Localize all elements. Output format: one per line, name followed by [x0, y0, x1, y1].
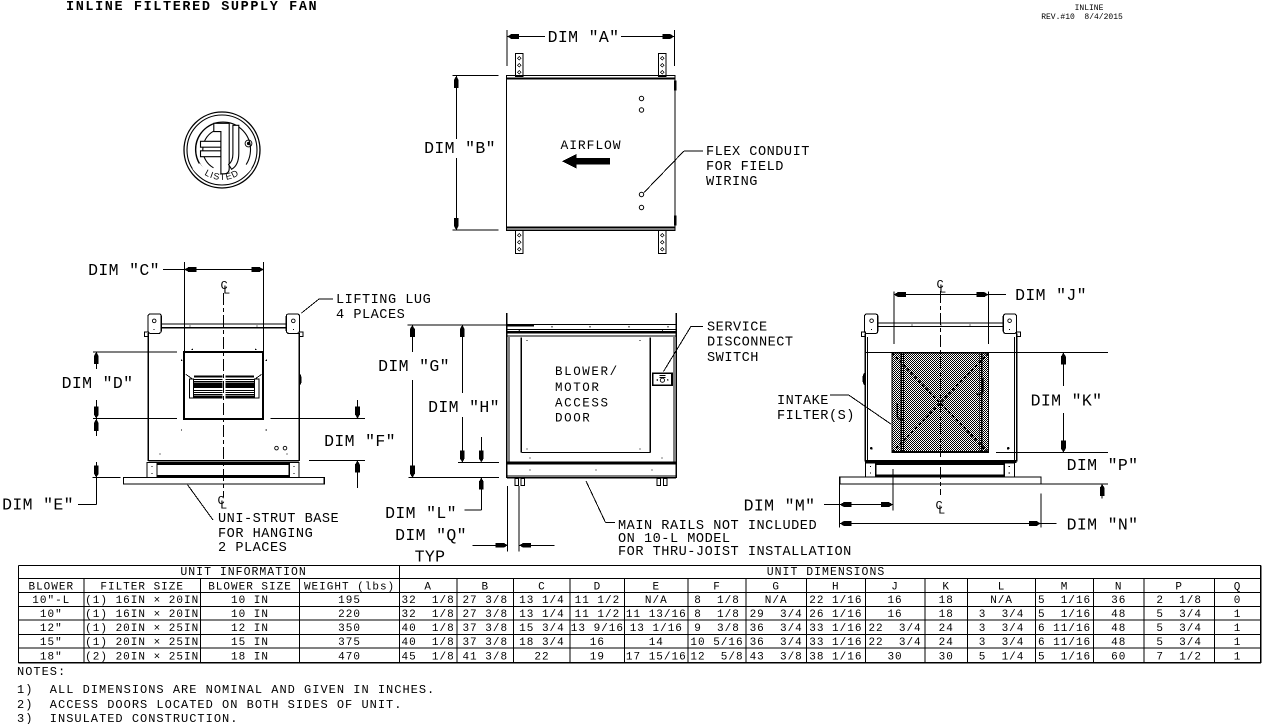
- svg-text:16: 16: [887, 595, 902, 607]
- svg-text:Q: Q: [1234, 582, 1242, 594]
- svg-text:(1) 20IN × 25IN: (1) 20IN × 25IN: [85, 623, 199, 635]
- svg-text:K: K: [942, 582, 950, 594]
- svg-text:DIM "B": DIM "B": [424, 139, 496, 158]
- svg-text:DIM "Q": DIM "Q": [395, 526, 467, 545]
- svg-text:48: 48: [1111, 623, 1126, 635]
- svg-text:1: 1: [1234, 623, 1242, 635]
- svg-text:E: E: [652, 582, 660, 594]
- svg-text:C: C: [538, 582, 546, 594]
- svg-text:19: 19: [590, 652, 605, 664]
- svg-text:SWITCH: SWITCH: [707, 351, 759, 366]
- svg-text:11 13/16: 11 13/16: [626, 609, 687, 621]
- svg-text:220: 220: [338, 609, 361, 621]
- svg-text:22 3/4: 22 3/4: [868, 637, 921, 649]
- svg-text:DIM "E": DIM "E": [2, 496, 74, 515]
- svg-text:BLOWER SIZE: BLOWER SIZE: [208, 582, 292, 594]
- svg-text:33 1/16: 33 1/16: [809, 637, 862, 649]
- svg-text:FOR THRU-JOIST INSTALLATION: FOR THRU-JOIST INSTALLATION: [618, 545, 852, 560]
- svg-text:(1) 16IN × 20IN: (1) 16IN × 20IN: [85, 609, 199, 621]
- svg-text:N/A: N/A: [990, 595, 1013, 607]
- svg-text:18 3/4: 18 3/4: [519, 637, 565, 649]
- svg-text:15 IN: 15 IN: [231, 637, 269, 649]
- svg-text:8 1/8: 8 1/8: [694, 609, 740, 621]
- svg-text:BLOWER/: BLOWER/: [555, 365, 619, 379]
- svg-text:L: L: [998, 582, 1006, 594]
- svg-text:DIM "M": DIM "M": [744, 497, 816, 516]
- svg-text:18 IN: 18 IN: [231, 652, 269, 664]
- svg-text:45 1/8: 45 1/8: [402, 652, 455, 664]
- svg-text:41 3/8: 41 3/8: [462, 652, 508, 664]
- svg-text:12 IN: 12 IN: [231, 623, 269, 635]
- svg-text:J: J: [891, 582, 899, 594]
- svg-text:WEIGHT (lbs): WEIGHT (lbs): [304, 582, 395, 594]
- svg-text:2) ACCESS DOORS LOCATED ON BO: 2) ACCESS DOORS LOCATED ON BOTH SIDES OF…: [17, 698, 402, 712]
- svg-text:AIRFLOW: AIRFLOW: [561, 138, 622, 153]
- svg-text:60: 60: [1111, 652, 1126, 664]
- svg-text:4 PLACES: 4 PLACES: [336, 308, 405, 323]
- svg-text:L: L: [938, 504, 945, 518]
- svg-text:13 1/4: 13 1/4: [519, 609, 565, 621]
- svg-text:1: 1: [1234, 652, 1242, 664]
- svg-text:N/A: N/A: [765, 595, 788, 607]
- svg-text:ACCESS: ACCESS: [555, 396, 610, 410]
- svg-text:0: 0: [1234, 595, 1242, 607]
- svg-text:1) ALL DIMENSIONS ARE NOMINAL: 1) ALL DIMENSIONS ARE NOMINAL AND GIVEN …: [17, 683, 435, 697]
- svg-text:26 1/16: 26 1/16: [809, 609, 862, 621]
- svg-text:L: L: [220, 499, 227, 513]
- svg-text:470: 470: [338, 652, 361, 664]
- svg-text:10": 10": [40, 609, 63, 621]
- svg-text:10 IN: 10 IN: [231, 609, 269, 621]
- svg-text:24: 24: [939, 623, 954, 635]
- svg-text:5 1/16: 5 1/16: [1038, 652, 1091, 664]
- svg-text:12": 12": [40, 623, 63, 635]
- svg-text:DIM "F": DIM "F": [324, 432, 396, 451]
- svg-text:3 3/4: 3 3/4: [979, 623, 1025, 635]
- svg-text:FOR FIELD: FOR FIELD: [706, 160, 784, 175]
- svg-text:29 3/4: 29 3/4: [750, 609, 803, 621]
- svg-text:INLINE FILTERED SUPPLY FAN: INLINE FILTERED SUPPLY FAN: [66, 0, 318, 15]
- svg-text:FILTER SIZE: FILTER SIZE: [100, 582, 184, 594]
- svg-text:FOR HANGING: FOR HANGING: [218, 527, 313, 542]
- svg-text:27 3/8: 27 3/8: [462, 609, 508, 621]
- svg-text:36 3/4: 36 3/4: [750, 623, 803, 635]
- svg-text:N: N: [1115, 582, 1123, 594]
- svg-text:DOOR: DOOR: [555, 412, 591, 426]
- svg-text:D: D: [594, 582, 602, 594]
- svg-text:13 9/16: 13 9/16: [571, 623, 624, 635]
- svg-text:DIM "K": DIM "K": [1031, 392, 1103, 411]
- svg-text:MOTOR: MOTOR: [555, 381, 601, 395]
- svg-text:37 3/8: 37 3/8: [462, 637, 508, 649]
- svg-text:33 1/16: 33 1/16: [809, 623, 862, 635]
- svg-text:40 1/8: 40 1/8: [402, 637, 455, 649]
- svg-text:5 1/16: 5 1/16: [1038, 609, 1091, 621]
- svg-text:24: 24: [939, 637, 954, 649]
- svg-text:38 1/16: 38 1/16: [809, 652, 862, 664]
- svg-text:11 1/2: 11 1/2: [575, 595, 621, 607]
- svg-text:DIM "P": DIM "P": [1067, 456, 1139, 475]
- svg-text:P: P: [1175, 582, 1183, 594]
- svg-text:12 5/8: 12 5/8: [690, 652, 743, 664]
- svg-text:350: 350: [338, 623, 361, 635]
- svg-text:32 1/8: 32 1/8: [402, 609, 455, 621]
- svg-text:(2) 20IN × 25IN: (2) 20IN × 25IN: [85, 652, 199, 664]
- svg-text:INLINE: INLINE: [1075, 4, 1104, 13]
- svg-text:REV.#10 8/4/2015: REV.#10 8/4/2015: [1041, 13, 1123, 22]
- svg-text:15": 15": [40, 637, 63, 649]
- svg-text:BLOWER: BLOWER: [28, 582, 74, 594]
- svg-text:L: L: [223, 284, 230, 298]
- svg-text:195: 195: [338, 595, 361, 607]
- svg-text:DIM "N": DIM "N": [1067, 516, 1139, 535]
- svg-text:F: F: [713, 582, 721, 594]
- svg-text:13 1/4: 13 1/4: [519, 595, 565, 607]
- svg-text:(1) 16IN × 20IN: (1) 16IN × 20IN: [85, 595, 199, 607]
- svg-text:UNIT DIMENSIONS: UNIT DIMENSIONS: [767, 566, 886, 579]
- svg-text:LIFTING LUG: LIFTING LUG: [336, 293, 431, 308]
- svg-text:22 1/16: 22 1/16: [809, 595, 862, 607]
- svg-text:DIM "A": DIM "A": [548, 28, 620, 47]
- svg-text:WIRING: WIRING: [706, 175, 758, 190]
- svg-text:UNIT INFORMATION: UNIT INFORMATION: [180, 566, 306, 579]
- svg-text:27 3/8: 27 3/8: [462, 595, 508, 607]
- svg-text:36 3/4: 36 3/4: [750, 637, 803, 649]
- svg-text:18: 18: [939, 595, 954, 607]
- svg-text:DIM "H": DIM "H": [428, 398, 500, 417]
- svg-text:22 3/4: 22 3/4: [868, 623, 921, 635]
- svg-text:DIM "C": DIM "C": [88, 261, 160, 280]
- svg-text:NOTES:: NOTES:: [17, 665, 66, 679]
- svg-text:48: 48: [1111, 637, 1126, 649]
- svg-text:5 3/4: 5 3/4: [1156, 623, 1202, 635]
- svg-text:10 5/16: 10 5/16: [690, 637, 743, 649]
- svg-text:18: 18: [939, 609, 954, 621]
- svg-text:7 1/2: 7 1/2: [1156, 652, 1202, 664]
- svg-text:3 3/4: 3 3/4: [979, 637, 1025, 649]
- svg-text:DISCONNECT: DISCONNECT: [707, 336, 794, 351]
- svg-text:10 IN: 10 IN: [231, 595, 269, 607]
- svg-text:16: 16: [590, 637, 605, 649]
- svg-text:18": 18": [40, 652, 63, 664]
- svg-text:40 1/8: 40 1/8: [402, 623, 455, 635]
- svg-text:5 3/4: 5 3/4: [1156, 637, 1202, 649]
- svg-text:13 1/16: 13 1/16: [630, 623, 683, 635]
- svg-text:37 3/8: 37 3/8: [462, 623, 508, 635]
- svg-text:DIM "D": DIM "D": [62, 374, 134, 393]
- svg-text:DIM "G": DIM "G": [378, 357, 450, 376]
- svg-text:3 3/4: 3 3/4: [979, 609, 1025, 621]
- svg-text:8 1/8: 8 1/8: [694, 595, 740, 607]
- svg-text:30: 30: [939, 652, 954, 664]
- svg-text:1: 1: [1234, 637, 1242, 649]
- svg-text:G: G: [772, 582, 780, 594]
- svg-text:30: 30: [887, 652, 902, 664]
- svg-text:375: 375: [338, 637, 361, 649]
- svg-text:SERVICE: SERVICE: [707, 320, 768, 335]
- svg-text:DIM "J": DIM "J": [1015, 286, 1087, 305]
- svg-text:DIM "L": DIM "L": [385, 504, 457, 523]
- svg-text:5 3/4: 5 3/4: [1156, 609, 1202, 621]
- svg-text:9 3/8: 9 3/8: [694, 623, 740, 635]
- svg-text:6 11/16: 6 11/16: [1038, 637, 1091, 649]
- svg-text:36: 36: [1111, 595, 1126, 607]
- svg-text:N/A: N/A: [645, 595, 668, 607]
- svg-text:11 1/2: 11 1/2: [575, 609, 621, 621]
- svg-text:3) INSULATED CONSTRUCTION.: 3) INSULATED CONSTRUCTION.: [17, 712, 238, 724]
- svg-text:(1) 20IN × 25IN: (1) 20IN × 25IN: [85, 637, 199, 649]
- svg-text:32 1/8: 32 1/8: [402, 595, 455, 607]
- svg-text:2 PLACES: 2 PLACES: [218, 541, 287, 556]
- svg-text:16: 16: [887, 609, 902, 621]
- svg-text:TYP: TYP: [415, 548, 446, 567]
- svg-text:15 3/4: 15 3/4: [519, 623, 565, 635]
- svg-text:UNI-STRUT BASE: UNI-STRUT BASE: [218, 512, 339, 527]
- svg-text:22: 22: [534, 652, 549, 664]
- svg-text:43 3/8: 43 3/8: [750, 652, 803, 664]
- svg-text:5 1/4: 5 1/4: [979, 652, 1025, 664]
- svg-text:B: B: [481, 582, 489, 594]
- svg-text:6 11/16: 6 11/16: [1038, 623, 1091, 635]
- svg-text:FLEX CONDUIT: FLEX CONDUIT: [706, 145, 810, 160]
- svg-text:17 15/16: 17 15/16: [626, 652, 687, 664]
- svg-text:2 1/8: 2 1/8: [1156, 595, 1202, 607]
- svg-text:A: A: [424, 582, 432, 594]
- svg-text:H: H: [832, 582, 840, 594]
- svg-text:M: M: [1061, 582, 1069, 594]
- svg-text:10"-L: 10"-L: [32, 595, 70, 607]
- svg-text:14: 14: [649, 637, 664, 649]
- svg-text:INTAKE: INTAKE: [777, 394, 829, 409]
- svg-text:1: 1: [1234, 609, 1242, 621]
- svg-text:FILTER(S): FILTER(S): [777, 409, 855, 424]
- svg-text:5 1/16: 5 1/16: [1038, 595, 1091, 607]
- svg-text:48: 48: [1111, 609, 1126, 621]
